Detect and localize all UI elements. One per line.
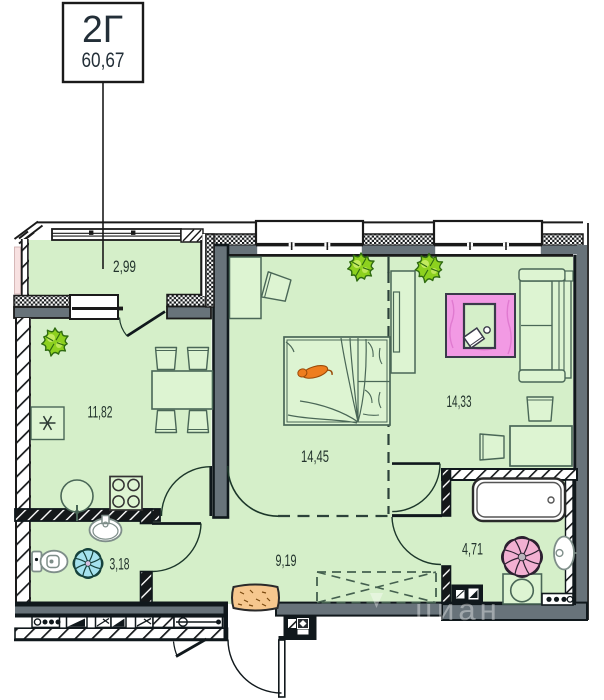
svg-text:9,19: 9,19 xyxy=(276,551,297,570)
svg-text:циан: циан xyxy=(415,592,500,627)
svg-text:2Г: 2Г xyxy=(82,9,123,51)
svg-text:3,18: 3,18 xyxy=(110,555,130,574)
svg-text:14,33: 14,33 xyxy=(447,392,472,411)
svg-text:4,71: 4,71 xyxy=(462,540,483,559)
svg-text:14,45: 14,45 xyxy=(301,447,329,466)
svg-text:60,67: 60,67 xyxy=(82,49,125,72)
svg-text:11,82: 11,82 xyxy=(88,403,113,422)
svg-text:2,99: 2,99 xyxy=(113,257,136,276)
